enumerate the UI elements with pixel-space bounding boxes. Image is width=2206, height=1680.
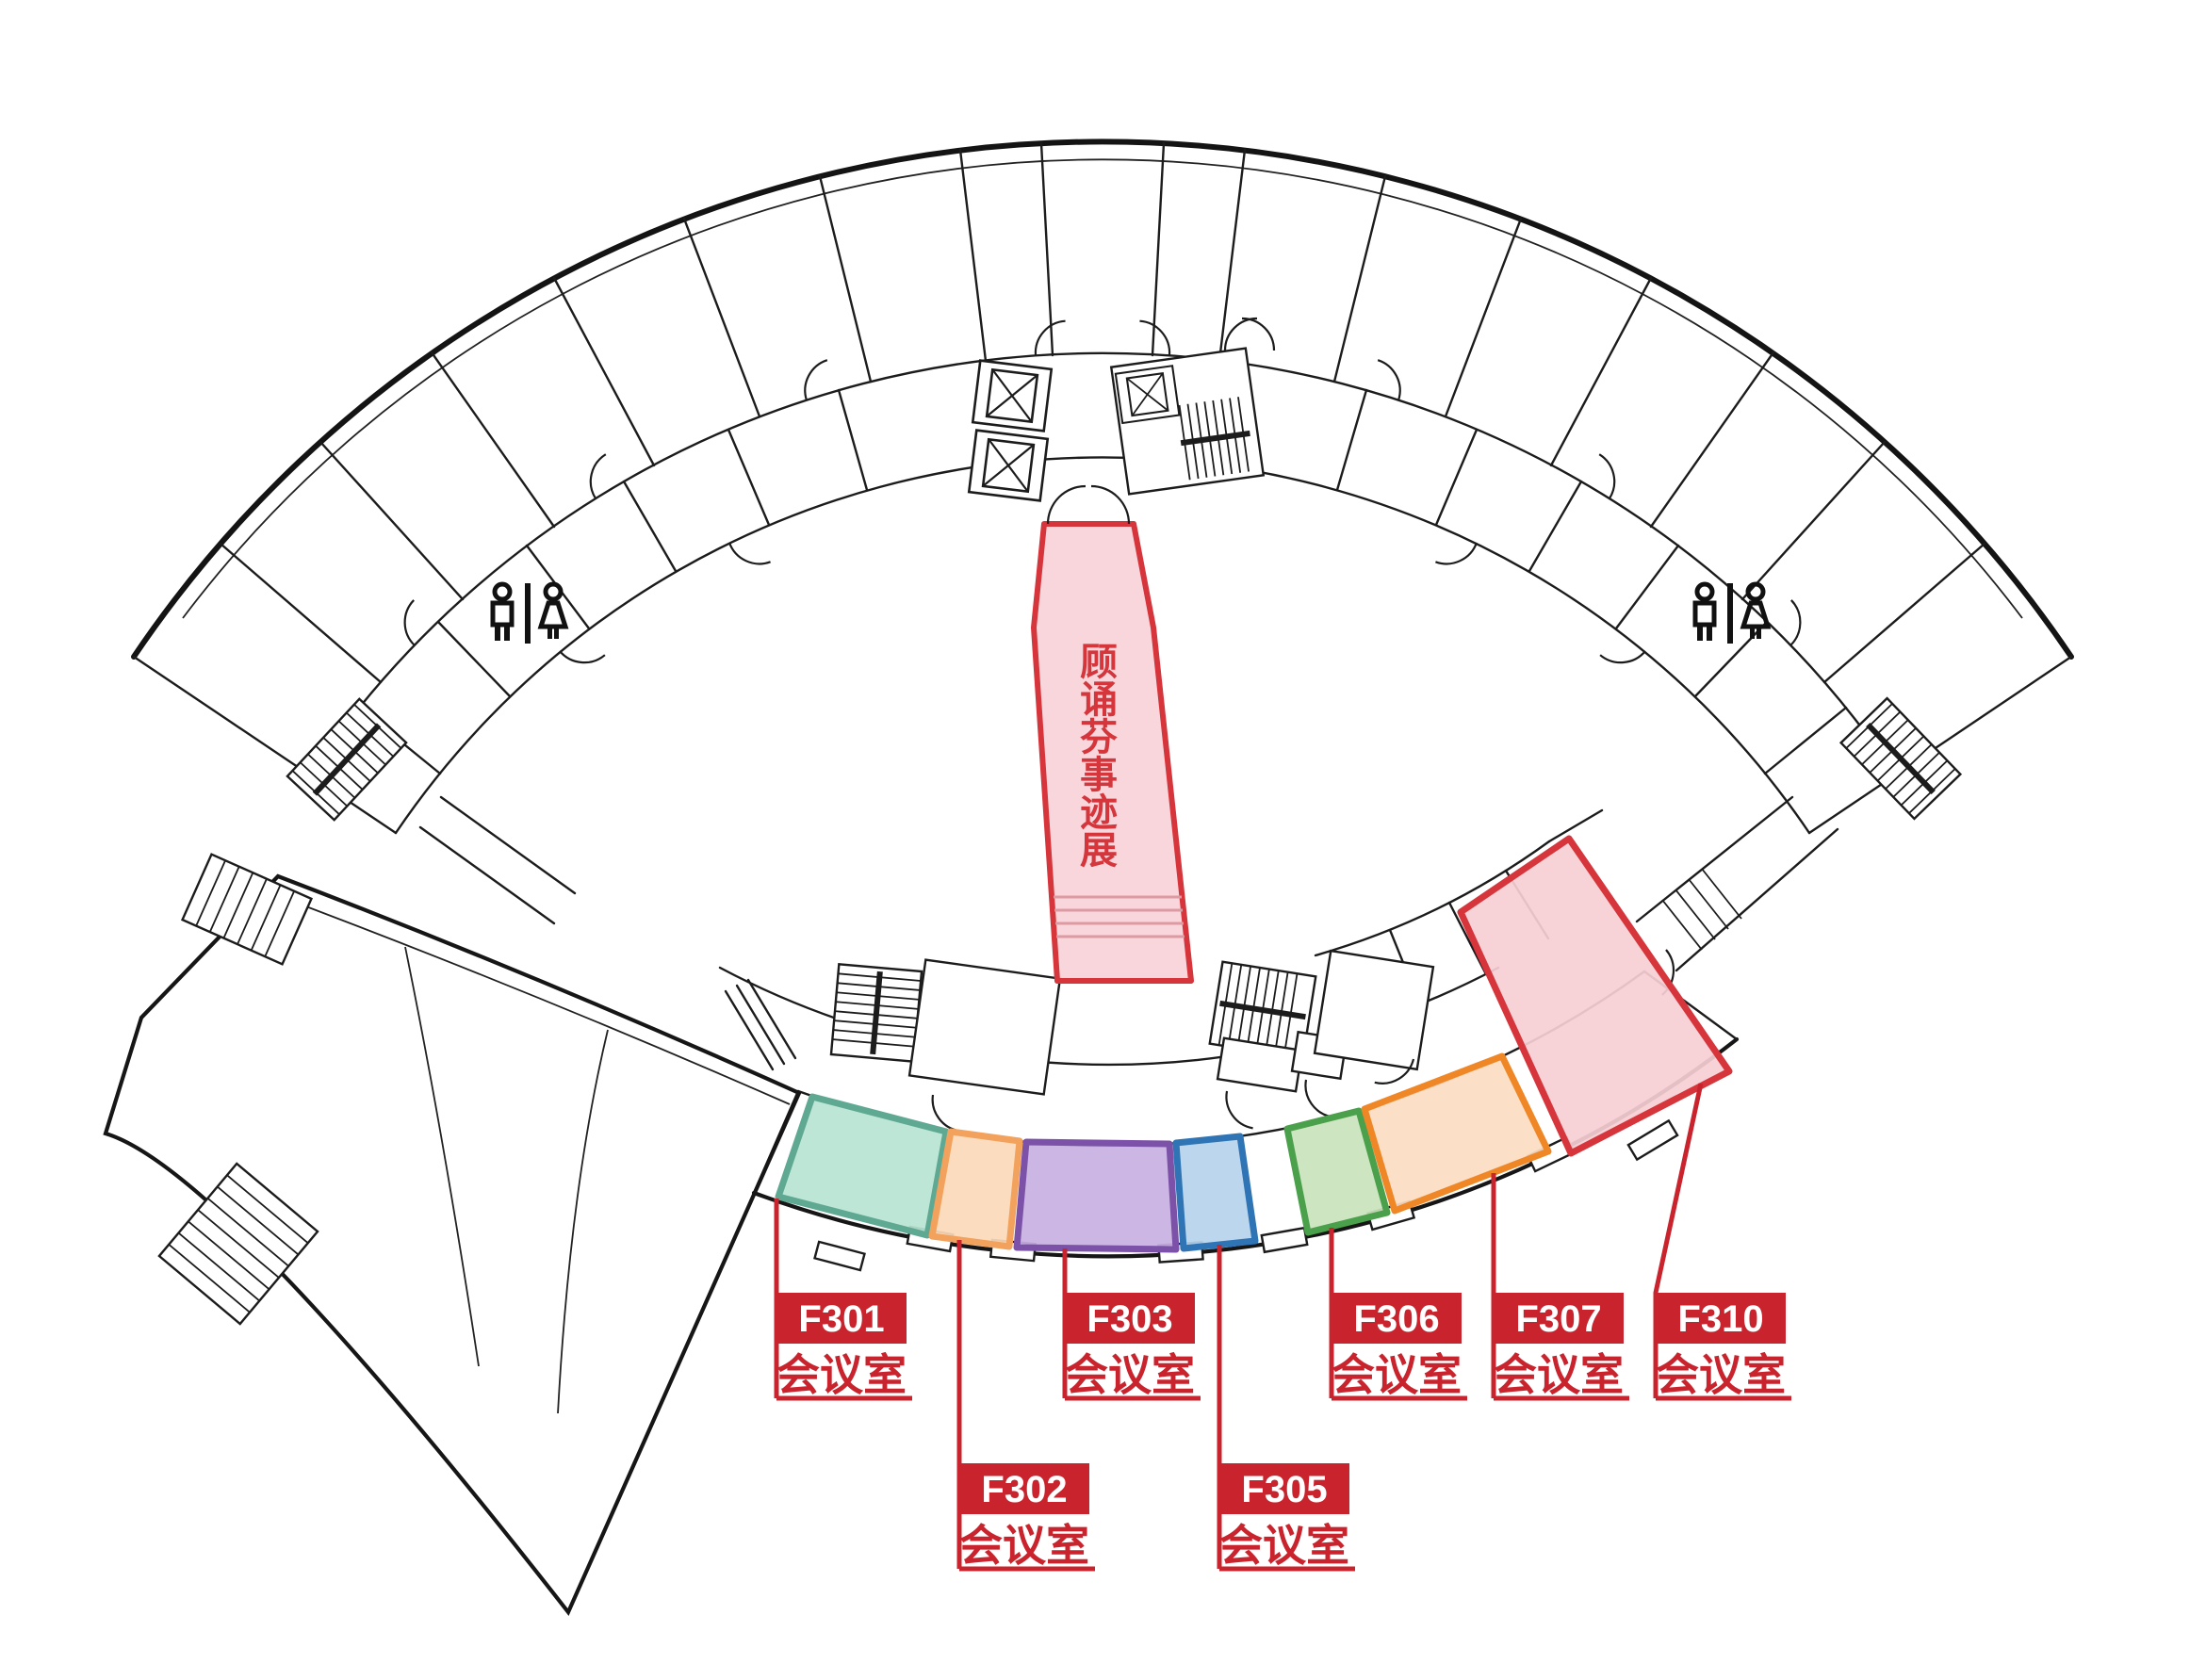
room-F307-shape: [1364, 1056, 1548, 1211]
label-room-type: 会议室: [959, 1521, 1089, 1570]
room-lower-left: [909, 960, 1060, 1095]
exhibition-text-char: 芬: [1080, 717, 1118, 758]
elevator-bank-left: [969, 361, 1051, 501]
room-labels: F301 会议室 F302 会议室 F303 会议室 F305 会议室: [776, 1293, 1791, 1570]
room-label-F306: F306 会议室: [1332, 1293, 1467, 1399]
label-room-number: F307: [1515, 1298, 1601, 1340]
label-room-type: 会议室: [1494, 1350, 1624, 1399]
exhibition-text-char: 事: [1080, 755, 1118, 796]
floor-plan-svg: 顾 诵 芬 事 迹 展 F301 会议室: [0, 0, 2206, 1680]
elevator-icon: [972, 361, 1051, 432]
label-room-number: F305: [1241, 1469, 1327, 1510]
exhibition-text-char: 迹: [1080, 792, 1118, 834]
stairs-upper-left-icon: [287, 699, 406, 820]
room-F303-shape: [1017, 1142, 1176, 1249]
exhibition-text-char: 顾: [1080, 642, 1118, 683]
exhibition-entry-doors: [1048, 486, 1129, 524]
label-room-type: 会议室: [1065, 1350, 1195, 1399]
floor-plan-page: 顾 诵 芬 事 迹 展 F301 会议室: [0, 0, 2206, 1680]
stairs-right-connector-icon: [1662, 869, 1741, 950]
room-F305-shape: [1176, 1136, 1255, 1248]
room-F302-shape: [932, 1132, 1020, 1247]
fan-divider-2: [558, 1030, 608, 1413]
room-F301-shape: [778, 1097, 946, 1235]
fan-hall: [106, 855, 799, 1612]
label-room-number: F301: [798, 1298, 884, 1340]
fan-divider-1: [405, 947, 479, 1366]
stairs-lower-left-icon: [831, 964, 922, 1061]
exhibition-text-char: 诵: [1080, 679, 1118, 721]
label-room-type: 会议室: [1656, 1350, 1786, 1399]
room-label-F303: F303 会议室: [1065, 1293, 1201, 1399]
exhibition-title: 顾 诵 芬 事 迹 展: [1080, 642, 1118, 872]
label-room-number: F303: [1087, 1298, 1172, 1340]
room-label-F301: F301 会议室: [776, 1293, 912, 1399]
exhibition-text-char: 展: [1080, 830, 1118, 872]
elevator-icon: [969, 431, 1047, 501]
label-room-type: 会议室: [776, 1350, 907, 1399]
room-label-F307: F307 会议室: [1494, 1293, 1629, 1399]
label-room-number: F302: [981, 1469, 1067, 1510]
room-label-F305: F305 会议室: [1219, 1463, 1355, 1570]
label-room-type: 会议室: [1332, 1350, 1462, 1399]
stairs-fan-top-icon: [183, 855, 312, 965]
label-room-number: F306: [1353, 1298, 1439, 1340]
stairs-upper-center-icon: [1111, 349, 1264, 495]
label-room-number: F310: [1677, 1298, 1763, 1340]
restroom-left-icon: [493, 583, 565, 644]
room-label-F310: F310 会议室: [1656, 1293, 1791, 1399]
stairs-fan-bottom-icon: [159, 1164, 318, 1324]
room-label-F302: F302 会议室: [959, 1463, 1095, 1570]
label-room-type: 会议室: [1219, 1521, 1349, 1570]
exhibition-corridor: 顾 诵 芬 事 迹 展: [1034, 486, 1191, 981]
